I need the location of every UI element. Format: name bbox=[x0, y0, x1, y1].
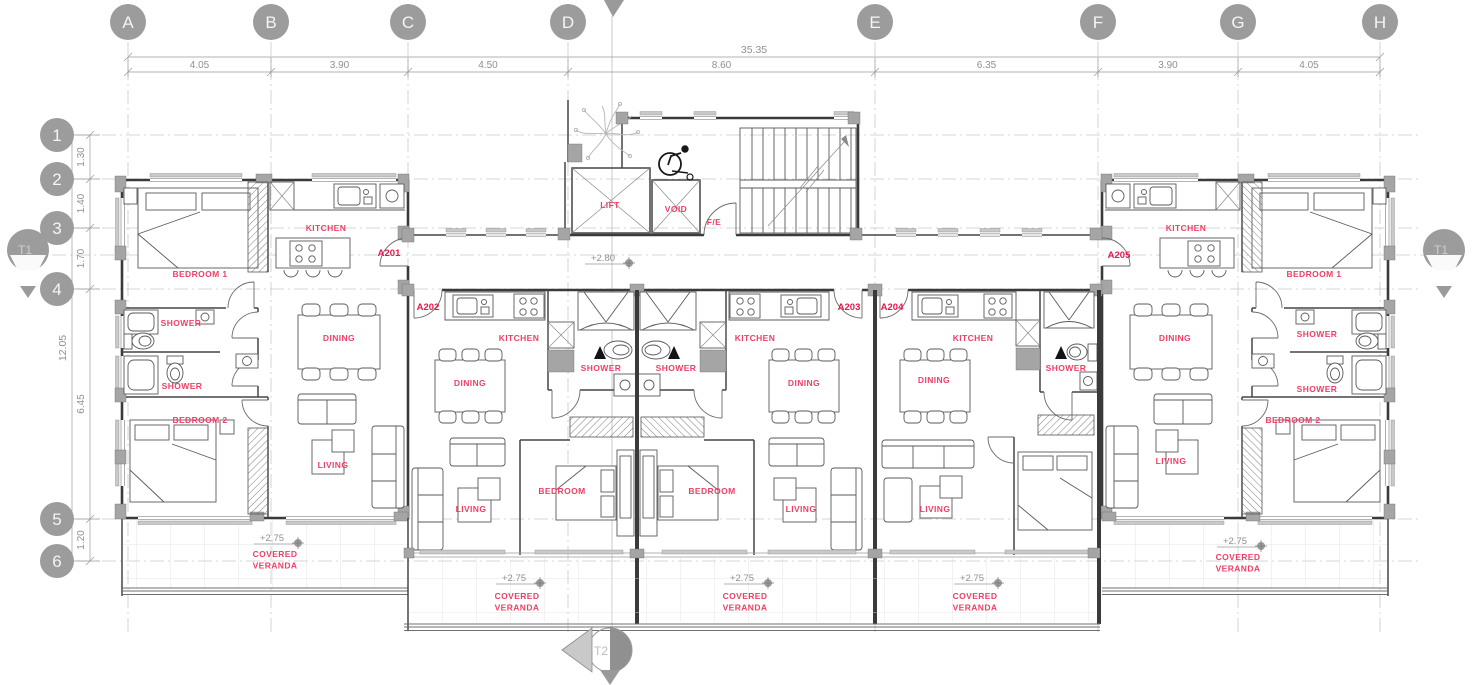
shower-room-fixtures bbox=[578, 292, 636, 396]
wardrobe bbox=[570, 417, 633, 437]
level-annotation: +2.75 bbox=[730, 573, 754, 584]
grid-bubble-label: 3 bbox=[52, 219, 61, 238]
room-label-dining: DINING bbox=[454, 378, 486, 388]
room-label-dining: DINING bbox=[323, 333, 355, 343]
dining-set bbox=[900, 349, 970, 423]
room-label-dining: DINING bbox=[918, 375, 950, 385]
veranda-label: COVERED bbox=[723, 591, 768, 601]
section-marker-top-arrow bbox=[604, 0, 624, 17]
section-marker-tip bbox=[1436, 286, 1452, 298]
section-marker-label: T1 bbox=[1434, 243, 1448, 257]
level-annotation: +2.80 bbox=[591, 253, 615, 264]
level-annotation: +2.75 bbox=[260, 533, 284, 544]
room-label-shower: SHOWER bbox=[1297, 329, 1338, 339]
grid-bubble-label: 2 bbox=[52, 170, 61, 189]
room-label-lift: LIFT bbox=[600, 200, 620, 210]
room-label-living: LIVING bbox=[456, 504, 487, 514]
segment-dimension: 1.70 bbox=[76, 248, 87, 268]
building-plan bbox=[115, 100, 1395, 631]
veranda-label: VERANDA bbox=[953, 603, 998, 613]
segment-dimension: 3.90 bbox=[1158, 60, 1178, 71]
level-annotation: +2.75 bbox=[960, 573, 984, 584]
room-label-bedroom: BEDROOM bbox=[688, 486, 735, 496]
room-label-shower: SHOWER bbox=[162, 381, 203, 391]
bed-double bbox=[1018, 452, 1092, 530]
room-label-shower: SHOWER bbox=[1046, 363, 1087, 373]
grid-bubble-label: 1 bbox=[52, 126, 61, 145]
kitchen-counter bbox=[270, 182, 405, 210]
shower-room-fixtures bbox=[1044, 292, 1097, 390]
room-label-bedroom-2: BEDROOM 2 bbox=[1265, 415, 1320, 425]
room-label-shower: SHOWER bbox=[581, 363, 622, 373]
apartment-a204 bbox=[882, 290, 1098, 555]
apartment-label-a201: A201 bbox=[378, 248, 401, 259]
floor-plan-svg: 35.354.053.904.508.606.353.904.0512.051.… bbox=[0, 0, 1472, 685]
room-label-dining: DINING bbox=[788, 378, 820, 388]
room-label-bedroom-2: BEDROOM 2 bbox=[172, 415, 227, 425]
veranda-label: COVERED bbox=[495, 591, 540, 601]
kitchen-island bbox=[276, 238, 350, 277]
room-label-shower: SHOWER bbox=[1297, 384, 1338, 394]
warning-triangle bbox=[1055, 346, 1067, 359]
room-label-bedroom-1: BEDROOM 1 bbox=[1286, 269, 1341, 279]
room-label-kitchen: KITCHEN bbox=[306, 223, 347, 233]
segment-dimension: 4.05 bbox=[190, 60, 210, 71]
living-set bbox=[412, 438, 505, 550]
room-label-bedroom: BEDROOM bbox=[538, 486, 585, 496]
grid-bubble-label: F bbox=[1093, 13, 1103, 32]
segment-dimension: 1.40 bbox=[76, 193, 87, 213]
section-marker-triangle bbox=[562, 628, 592, 672]
room-label-kitchen: KITCHEN bbox=[499, 333, 540, 343]
veranda-label: VERANDA bbox=[723, 603, 768, 613]
section-marker-triangle bbox=[1426, 255, 1462, 290]
apartment-label-a203: A203 bbox=[838, 302, 861, 313]
grid-bubble-label: 6 bbox=[52, 552, 61, 571]
segment-dimension: 3.90 bbox=[330, 60, 350, 71]
room-label-kitchen: KITCHEN bbox=[1166, 223, 1207, 233]
wheelchair-symbol bbox=[659, 146, 693, 180]
grid-bubble-label: 5 bbox=[52, 510, 61, 529]
segment-dimension: 1.20 bbox=[76, 530, 87, 550]
room-label-kitchen: KITCHEN bbox=[953, 333, 994, 343]
room-label-living: LIVING bbox=[318, 460, 349, 470]
room-label-shower: SHOWER bbox=[656, 363, 697, 373]
section-marker-tip bbox=[600, 670, 620, 685]
room-label-f-e: F/E bbox=[707, 217, 721, 227]
wardrobe bbox=[248, 182, 268, 272]
center-verandas bbox=[404, 548, 1100, 631]
segment-dimension: 4.50 bbox=[478, 60, 498, 71]
bed-double-2 bbox=[130, 420, 234, 502]
grid-bubble-label: C bbox=[402, 13, 414, 32]
staircase bbox=[740, 128, 856, 233]
section-marker-label: T2 bbox=[594, 644, 608, 658]
veranda-label: COVERED bbox=[1216, 552, 1261, 562]
room-label-bedroom-1: BEDROOM 1 bbox=[172, 269, 227, 279]
apartment-label-a205: A205 bbox=[1108, 250, 1131, 261]
section-marker-half-circle bbox=[610, 628, 632, 672]
center-apartment-mirrored bbox=[637, 290, 862, 555]
wardrobe bbox=[248, 428, 268, 514]
veranda-label: COVERED bbox=[953, 591, 998, 601]
grid-bubble-label: B bbox=[265, 13, 276, 32]
bed-double bbox=[124, 188, 258, 268]
grid-bubble-label: E bbox=[869, 13, 880, 32]
room-label-void: VOID bbox=[665, 204, 687, 214]
room-label-living: LIVING bbox=[920, 504, 951, 514]
room-label-shower: SHOWER bbox=[161, 318, 202, 328]
level-target-cross bbox=[623, 257, 635, 269]
veranda-label: VERANDA bbox=[253, 561, 298, 571]
segment-dimension: 8.60 bbox=[712, 60, 732, 71]
stair-core bbox=[565, 100, 860, 235]
overall-width-dimension: 35.35 bbox=[741, 44, 767, 56]
wardrobe bbox=[1038, 415, 1094, 435]
section-marker-label: T1 bbox=[18, 243, 32, 257]
segment-dimension: 4.05 bbox=[1299, 60, 1319, 71]
veranda-label: VERANDA bbox=[1216, 564, 1261, 574]
level-annotation: +2.75 bbox=[502, 573, 526, 584]
center-apartment bbox=[412, 290, 637, 555]
grid-bubble-label: G bbox=[1231, 13, 1244, 32]
apartment-label-a202: A202 bbox=[417, 302, 440, 313]
room-label-living: LIVING bbox=[1156, 456, 1187, 466]
floor-plan-page: 35.354.053.904.508.606.353.904.0512.051.… bbox=[0, 0, 1472, 685]
veranda-label: VERANDA bbox=[495, 603, 540, 613]
plant-graphic bbox=[574, 102, 639, 159]
grid-bubble-label: D bbox=[562, 13, 574, 32]
veranda-label: COVERED bbox=[253, 549, 298, 559]
apartment-label-a204: A204 bbox=[881, 302, 904, 313]
segment-dimension: 1.30 bbox=[76, 147, 87, 167]
overall-height-dimension: 12.05 bbox=[57, 335, 69, 361]
grid-bubble-label: 4 bbox=[52, 280, 61, 299]
shower-room-1-fixtures bbox=[124, 310, 214, 349]
grid-bubble-label: H bbox=[1374, 13, 1386, 32]
level-annotation: +2.75 bbox=[1223, 536, 1247, 547]
grid-bubble-label: A bbox=[122, 13, 134, 32]
segment-dimension: 6.45 bbox=[76, 394, 87, 414]
right-apartment-block bbox=[1101, 174, 1395, 597]
room-label-dining: DINING bbox=[1159, 333, 1191, 343]
section-marker-tip bbox=[20, 286, 36, 298]
segment-dimension: 6.35 bbox=[977, 60, 997, 71]
room-label-kitchen: KITCHEN bbox=[735, 333, 776, 343]
room-label-living: LIVING bbox=[786, 504, 817, 514]
living-set bbox=[298, 394, 404, 508]
